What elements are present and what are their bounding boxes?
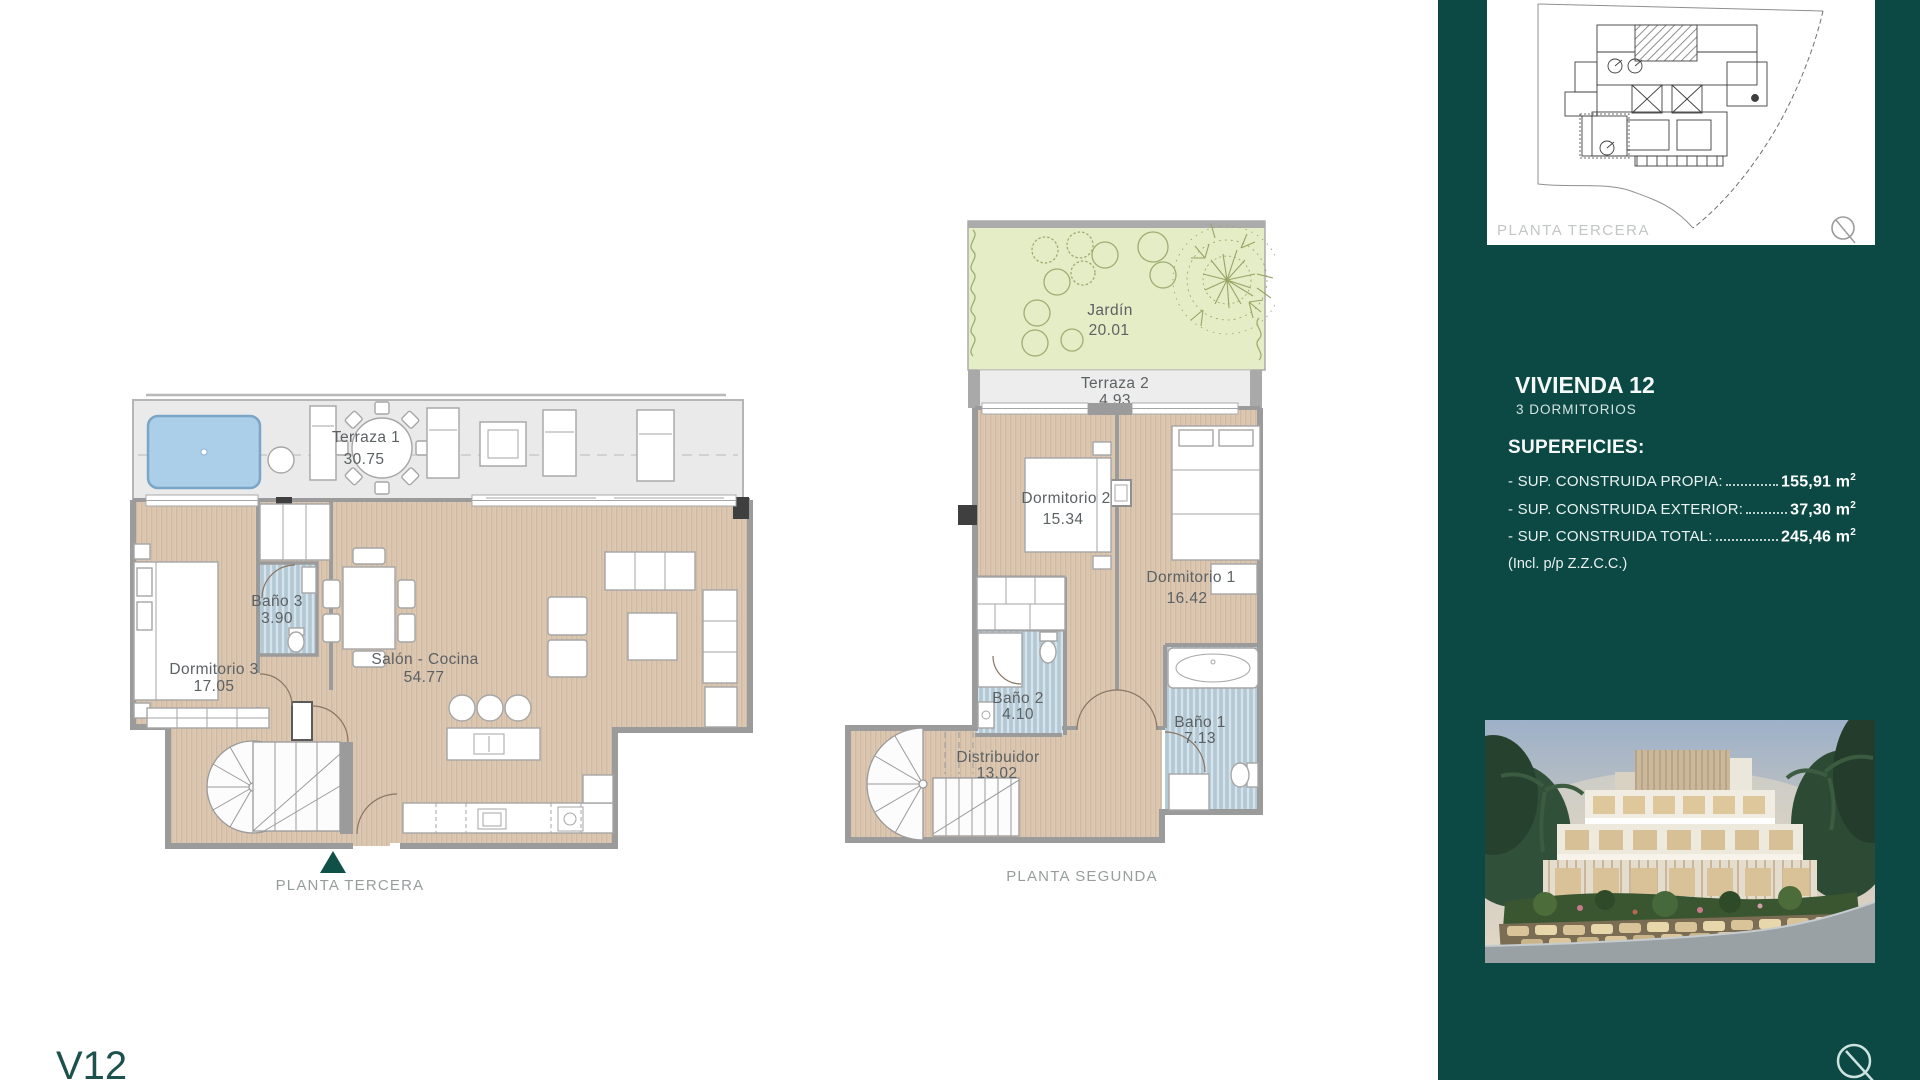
surface-value: 155,91 m2 xyxy=(1781,472,1856,491)
room-label-jardin-name: Jardín xyxy=(1087,302,1132,319)
siteplan-label: PLANTA TERCERA xyxy=(1497,222,1650,239)
plan-caption-tercera: PLANTA TERCERA xyxy=(230,877,470,894)
siteplan-sketch xyxy=(1487,0,1875,245)
room-label-dormitorio-1-name: Dormitorio 1 xyxy=(1146,569,1235,586)
building-footprint xyxy=(1565,25,1767,166)
room-label-dormitorio-1-area: 16.42 xyxy=(1167,590,1208,607)
north-triangle-marker xyxy=(320,851,346,873)
surface-row-exterior: - SUP. CONSTRUIDA EXTERIOR: 37,30 m2 xyxy=(1508,500,1856,528)
unit-title: VIVIENDA 12 xyxy=(1515,372,1655,399)
unit-code-watermark: V12 xyxy=(56,1044,127,1089)
room-terraza-1: Terraza 1 30.75 xyxy=(133,395,743,500)
dotted-leader xyxy=(1746,512,1787,514)
superficies-table: - SUP. CONSTRUIDA PROPIA: 155,91 m2 - SU… xyxy=(1508,472,1856,555)
door-jamb xyxy=(292,702,312,740)
room-label-bano-1-name: Baño 1 xyxy=(1174,714,1226,731)
surface-label: - SUP. CONSTRUIDA TOTAL: xyxy=(1508,528,1713,545)
dotted-leader xyxy=(1726,484,1778,486)
wardrobe-dormitorio-3 xyxy=(147,708,269,728)
wardrobe-dormitorio-2 xyxy=(977,577,1065,630)
side-table xyxy=(268,447,294,473)
room-label-terraza-1-name: Terraza 1 xyxy=(332,429,400,446)
room-label-bano-1-area: 7.13 xyxy=(1184,730,1216,747)
surface-row-total: - SUP. CONSTRUIDA TOTAL: 245,46 m2 xyxy=(1508,527,1856,555)
room-label-salon-area: 54.77 xyxy=(404,669,445,686)
room-jardin: Jardín 20.01 xyxy=(968,221,1275,370)
surface-label: - SUP. CONSTRUIDA PROPIA: xyxy=(1508,473,1723,490)
windows xyxy=(982,403,1238,415)
floorplan-planta-segunda: Jardín 20.01 Terraza 2 4.93 xyxy=(845,218,1275,850)
dotted-leader xyxy=(1716,539,1778,541)
sidebar: PLANTA TERCERA VIVIENDA 12 3 DORMITORIOS… xyxy=(1438,0,1920,1080)
superficies-note: (Incl. p/p Z.Z.C.C.) xyxy=(1508,556,1627,572)
room-label-distribuidor-area: 13.02 xyxy=(977,765,1018,782)
room-label-terraza-2-name: Terraza 2 xyxy=(1081,375,1149,392)
surface-label: - SUP. CONSTRUIDA EXTERIOR: xyxy=(1508,501,1743,518)
brochure-page: Terraza 1 30.75 xyxy=(0,0,1920,1080)
room-label-bano-2-name: Baño 2 xyxy=(992,690,1044,707)
room-label-dormitorio-3-name: Dormitorio 3 xyxy=(169,661,258,678)
kitchen-island xyxy=(447,695,540,760)
plunge-pool xyxy=(148,416,260,488)
room-label-bano-3-name: Baño 3 xyxy=(251,593,303,610)
superficies-heading: SUPERFICIES: xyxy=(1508,437,1645,459)
kitchen-counter xyxy=(403,803,613,833)
room-label-bano-2-area: 4.10 xyxy=(1002,706,1034,723)
bed-dormitorio-1 xyxy=(1172,426,1260,560)
building-render-photo xyxy=(1485,720,1875,963)
room-label-dormitorio-2-area: 15.34 xyxy=(1043,511,1084,528)
north-compass-icon xyxy=(1832,217,1855,243)
room-label-bano-3-area: 3.90 xyxy=(261,610,293,627)
unit-subtitle: 3 DORMITORIOS xyxy=(1516,402,1637,417)
spiral-staircase xyxy=(207,741,340,833)
room-label-distribuidor-name: Distribuidor xyxy=(956,749,1039,766)
surface-row-propia: - SUP. CONSTRUIDA PROPIA: 155,91 m2 xyxy=(1508,472,1856,500)
surface-value: 37,30 m2 xyxy=(1790,500,1856,519)
bathtub xyxy=(1168,648,1258,688)
north-compass-icon xyxy=(1820,1036,1900,1080)
window-bench xyxy=(583,775,613,803)
plan-caption-segunda: PLANTA SEGUNDA xyxy=(962,868,1202,885)
room-label-terraza-1-area: 30.75 xyxy=(344,451,385,468)
floorplan-planta-tercera: Terraza 1 30.75 xyxy=(126,390,756,870)
room-label-dormitorio-3-area: 17.05 xyxy=(194,678,235,695)
room-label-jardin-area: 20.01 xyxy=(1089,322,1130,339)
surface-value: 245,46 m2 xyxy=(1781,527,1856,546)
siteplan-thumbnail: PLANTA TERCERA xyxy=(1487,0,1875,245)
room-label-dormitorio-2-name: Dormitorio 2 xyxy=(1021,490,1110,507)
room-label-salon-name: Salón - Cocina xyxy=(371,651,478,668)
